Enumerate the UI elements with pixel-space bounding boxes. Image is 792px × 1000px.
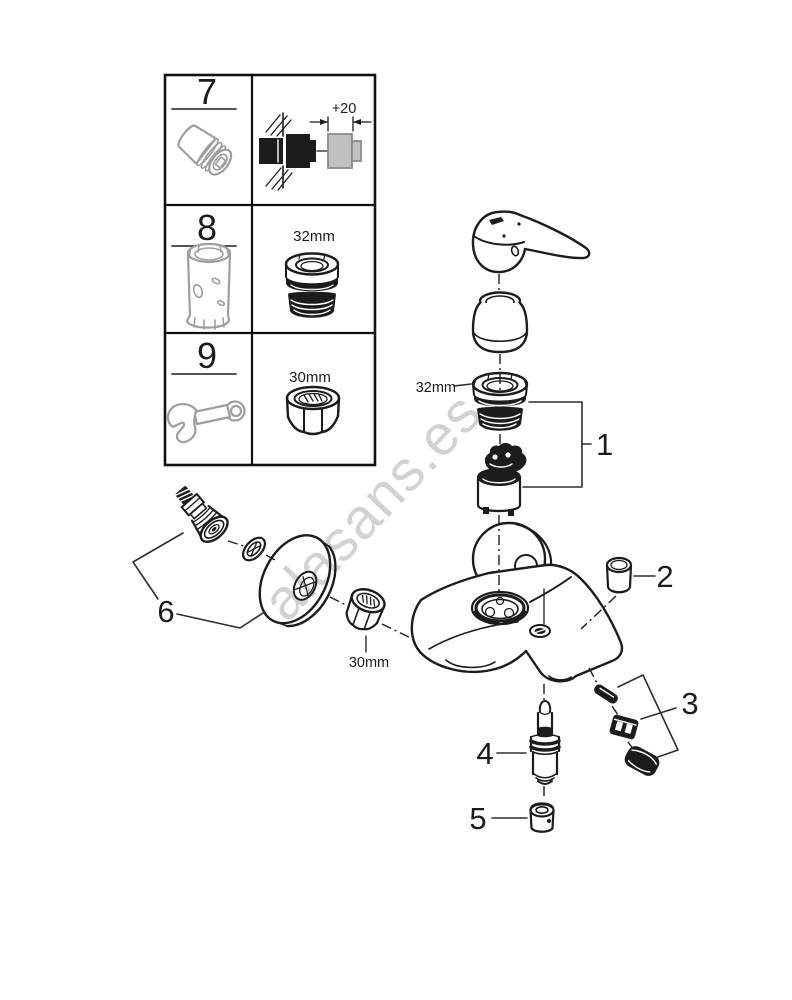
clip-part (609, 714, 639, 740)
nut-size-label: 30mm (289, 369, 331, 386)
fitting-behind-wall (259, 138, 283, 164)
callout-1: 1 (596, 427, 613, 462)
exploded-parts-diagram: 7 (0, 0, 792, 1000)
check-valve-part: 5 (469, 801, 553, 836)
legend-row-9: 9 30mm (168, 335, 339, 442)
callout-4: 4 (476, 736, 493, 771)
callout-6-bracket-upper (133, 533, 183, 599)
legend-row-7: 7 (172, 71, 371, 190)
tool-number-9: 9 (197, 335, 217, 376)
nut-size-label: 30mm (349, 655, 389, 671)
callout-2: 2 (656, 559, 673, 594)
faucet-body (412, 565, 622, 681)
tool-number-7: 7 (197, 71, 217, 112)
parts-diagram-page: 7 (0, 0, 792, 1000)
callout-1-bracket: 1 (523, 402, 613, 487)
open-end-wrench-icon (168, 402, 245, 443)
extension-tip-grey (352, 141, 361, 161)
callout-6-bracket-lower (177, 613, 263, 628)
fitting-stub (310, 140, 316, 162)
pin-clip-sleeve-group: 3 (589, 668, 699, 779)
cartridge-seat (472, 592, 528, 624)
dimension-plus20: +20 (310, 101, 371, 131)
adapter-size-label: 32mm (293, 228, 335, 245)
ring-size-leader (454, 384, 471, 386)
callout-5: 5 (469, 801, 486, 836)
threaded-adapter-32mm: 32mm (286, 228, 338, 318)
pin-part (592, 683, 619, 706)
cartridge (478, 443, 526, 516)
wall-installation-diagram: +20 (259, 101, 371, 190)
extension-piece-grey (328, 134, 352, 168)
legend-row-8: 8 32mm (172, 207, 338, 329)
dimension-plus20-label: +20 (332, 101, 357, 117)
lever-handle (473, 212, 589, 272)
union-nut-part (342, 585, 388, 634)
diverter-part: 4 (476, 684, 559, 800)
dome-cap (473, 293, 527, 353)
extension-adapter-icon (174, 121, 237, 180)
filter-washer-part (239, 534, 269, 565)
legend-table: 7 (165, 71, 375, 465)
callout-3: 3 (681, 686, 698, 721)
hex-nut-30mm: 30mm (287, 369, 339, 434)
sleeve-part (622, 743, 662, 778)
tool-number-8: 8 (197, 207, 217, 248)
fitting-front (286, 134, 310, 168)
callout-6: 6 (157, 594, 174, 629)
plug-screw-hole (530, 625, 550, 637)
socket-wrench-icon (187, 244, 230, 329)
